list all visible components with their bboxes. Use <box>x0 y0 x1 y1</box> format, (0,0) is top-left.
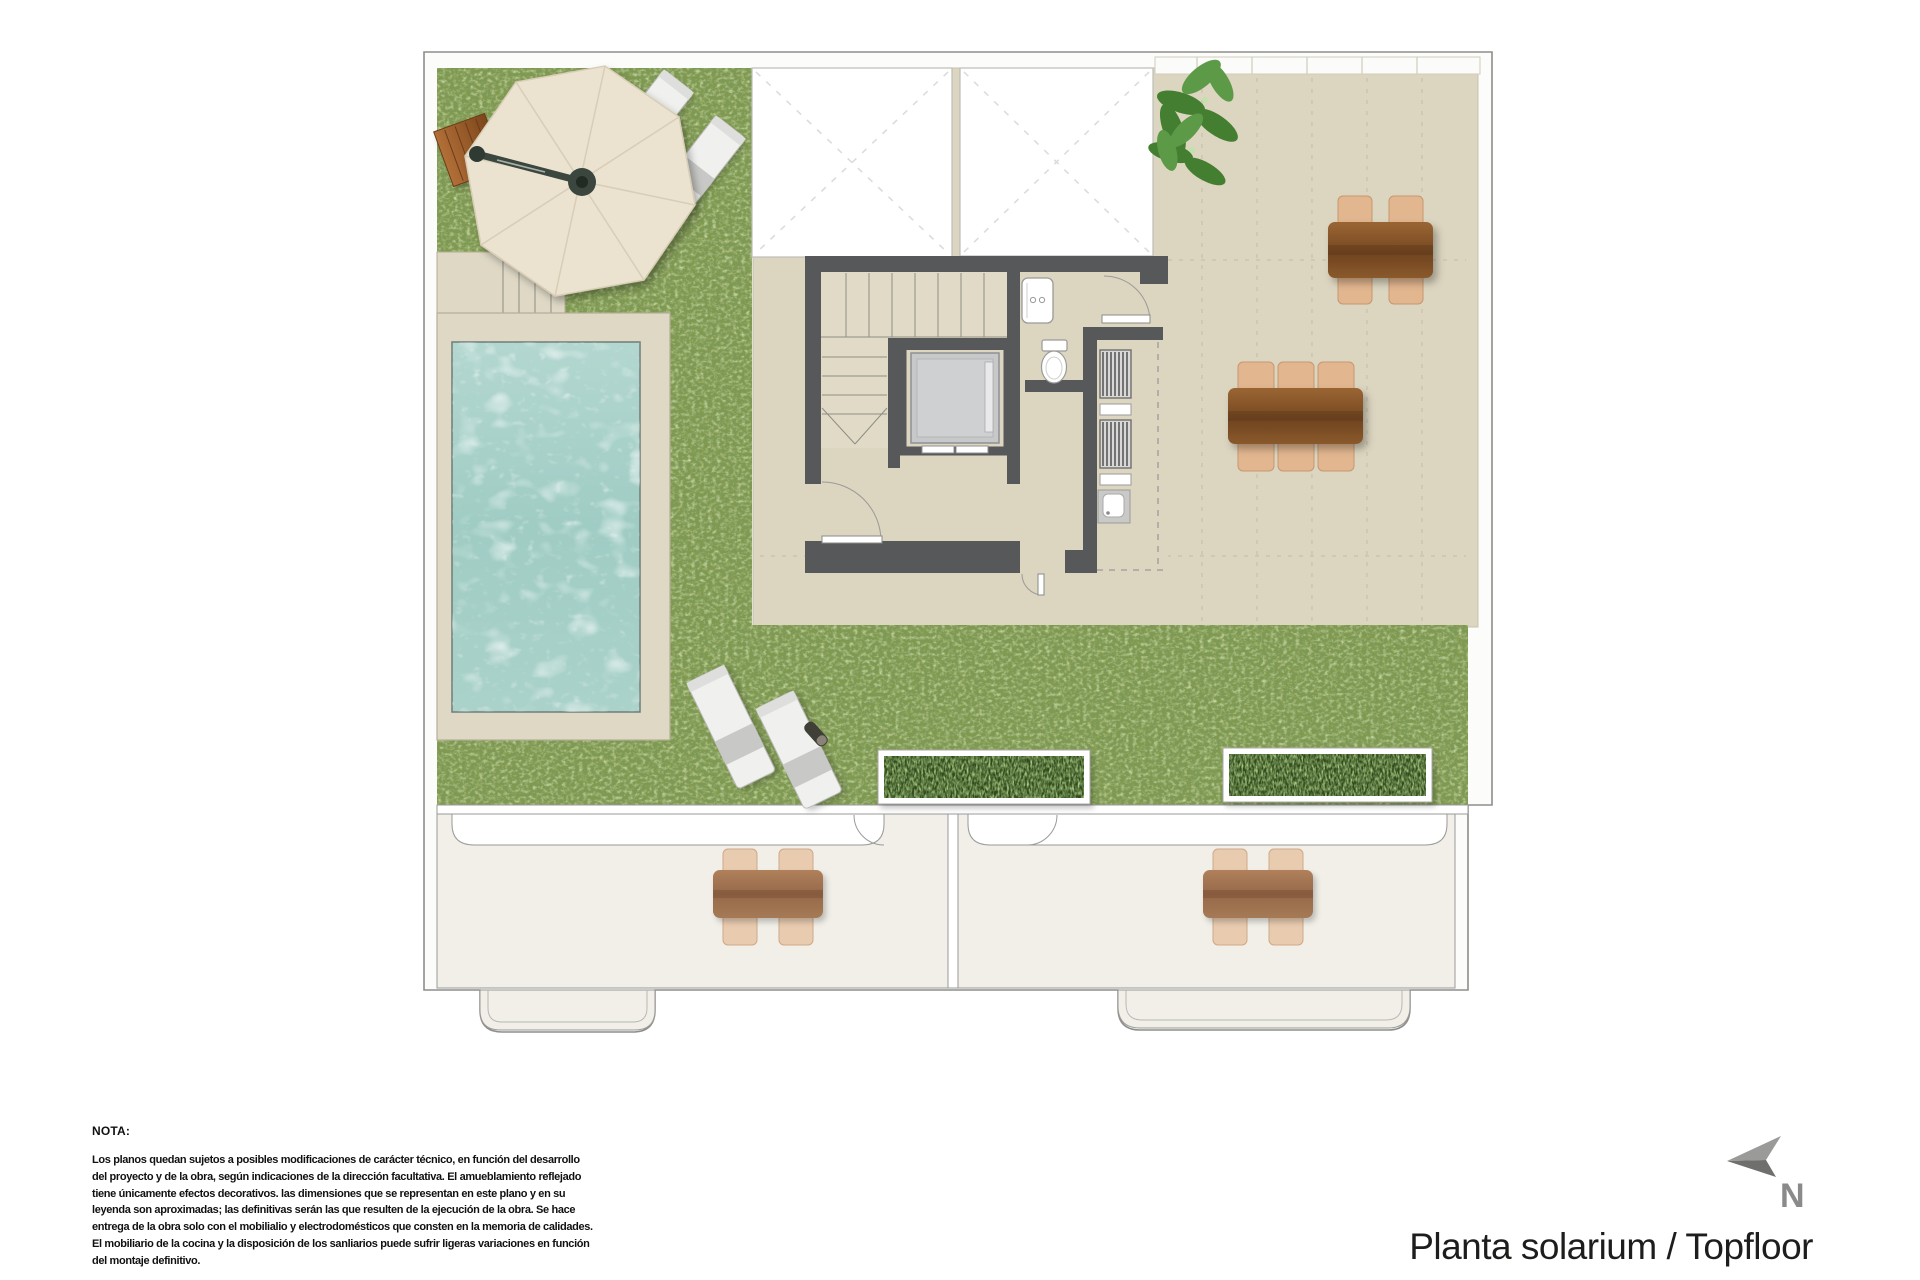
party-wall <box>948 814 958 988</box>
north-label: N <box>1780 1177 1805 1215</box>
parapet-band <box>437 805 1468 814</box>
ac-louver-unit <box>1100 420 1131 468</box>
utility-sink <box>1098 490 1130 523</box>
note-line: del montaje definitivo. <box>92 1253 593 1270</box>
awning-left <box>452 814 884 845</box>
swimming-pool <box>452 342 640 712</box>
lower-terraces <box>437 805 1468 1030</box>
parasol-anchor <box>469 146 485 162</box>
floorplan-sheet: NOTA: Los planos quedan sujetos a posibl… <box>0 0 1920 1280</box>
toilet <box>1042 340 1068 383</box>
planter-left <box>878 750 1090 804</box>
stairs-left-flight <box>821 338 888 448</box>
note-line: leyenda son aproximadas; las definitivas… <box>92 1202 593 1219</box>
north-arrow-lower-facet <box>1727 1160 1776 1177</box>
note-heading: NOTA: <box>92 1124 593 1138</box>
ac-louver-unit <box>1100 350 1131 398</box>
note-body: Los planos quedan sujetos a posibles mod… <box>92 1152 593 1270</box>
roof-void-left <box>752 68 952 257</box>
lower-notch-right <box>1118 990 1410 1028</box>
stair-core <box>805 256 1168 595</box>
north-arrow: N <box>1700 1118 1840 1228</box>
planter-right <box>1223 748 1432 802</box>
note-line: del proyecto y de la obra, según indicac… <box>92 1169 593 1186</box>
plan-title: Planta solarium / Topfloor <box>1409 1226 1813 1268</box>
shower-unit <box>1022 278 1053 323</box>
note-block: NOTA: Los planos quedan sujetos a posibl… <box>92 1124 593 1270</box>
north-arrow-upper-facet <box>1727 1136 1781 1161</box>
elevator <box>902 344 1008 453</box>
note-line: Los planos quedan sujetos a posibles mod… <box>92 1152 593 1169</box>
roof-void-right <box>960 68 1153 256</box>
awning-right <box>968 814 1447 845</box>
note-line: El mobiliario de la cocina y la disposic… <box>92 1236 593 1253</box>
stairs-upper-flight <box>821 272 1007 338</box>
note-line: entrega de la obra solo con el mobiliali… <box>92 1219 593 1236</box>
note-line: tiene únicamente efectos decorativos. la… <box>92 1186 593 1203</box>
floorplan-drawing <box>0 0 1920 1280</box>
dining-set-6 <box>1228 362 1363 471</box>
lower-notch-left <box>480 990 655 1030</box>
